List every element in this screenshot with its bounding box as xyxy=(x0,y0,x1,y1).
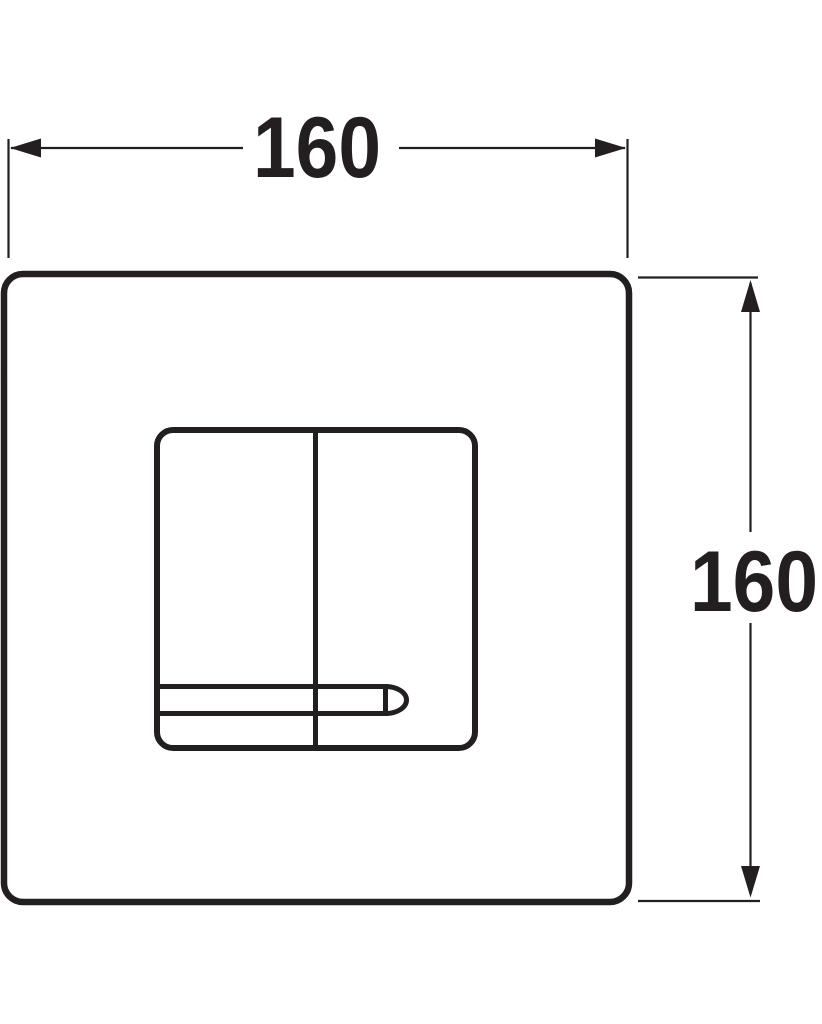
slot-rounded-cap xyxy=(386,687,407,714)
dim-arrow-right-icon xyxy=(595,139,626,158)
height-dimension: 160 xyxy=(638,278,818,902)
technical-drawing-canvas: 160 160 xyxy=(0,0,822,1024)
dim-arrow-up-icon xyxy=(741,280,760,312)
dim-arrow-down-icon xyxy=(741,866,760,898)
height-dimension-label: 160 xyxy=(690,534,818,630)
dim-arrow-left-icon xyxy=(10,139,41,158)
technical-drawing-page: 160 160 xyxy=(0,0,822,1024)
width-dimension: 160 xyxy=(9,100,628,258)
width-dimension-label: 160 xyxy=(253,100,381,196)
